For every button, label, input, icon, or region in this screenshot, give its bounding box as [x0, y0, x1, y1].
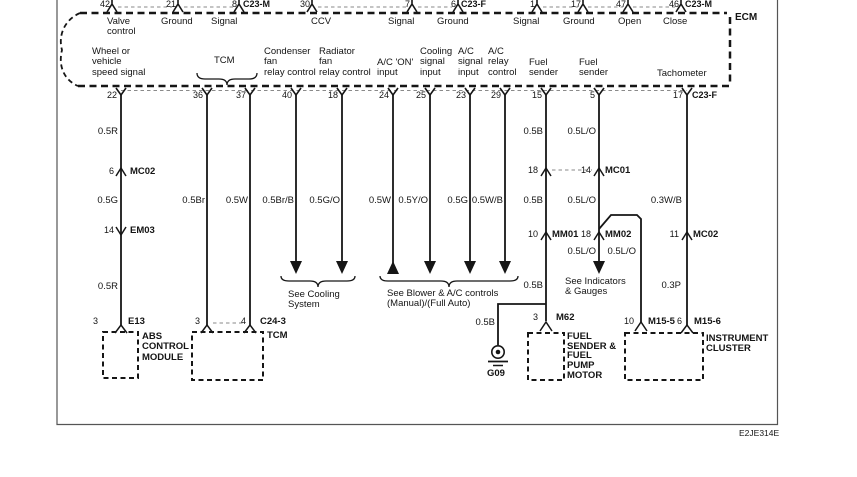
ecm-fn-cooling-signal: Cooling signal input: [420, 47, 456, 78]
connector-label-c23m-1: C23-M: [243, 0, 270, 10]
ecm-top-pin-6: 6: [441, 0, 456, 10]
ecm-top-pin-7: 7: [395, 0, 410, 10]
ecm-bottom-pin-18: 18: [322, 91, 338, 101]
ecm-fn-valve-control: Valve control: [107, 17, 143, 38]
tcm-connector: C24-3: [260, 317, 286, 327]
ecm-bottom-pin-25: 25: [410, 91, 426, 101]
ecm-fn-tcm: TCM: [214, 56, 235, 66]
ecm-fn-fuel-sender-2: Fuel sender: [579, 58, 613, 79]
wire-22-color-1: 0.5R: [85, 127, 118, 137]
ecm-top-pin-47: 47: [611, 0, 626, 10]
diagram-code: E2JE314E: [739, 429, 779, 438]
em03-pin: 14: [98, 226, 114, 236]
wire-25-color: 0.5Y/O: [392, 196, 428, 206]
ecm-bottom-pin-36: 36: [187, 91, 203, 101]
ecm-fn-condenser-fan: Condenser fan relay control: [264, 47, 318, 78]
see-indicators-gauges-note: See Indicators & Gauges: [565, 277, 626, 298]
m62-fork: [540, 322, 552, 331]
ecm-fn-ac-signal: A/C signal input: [458, 47, 488, 78]
wire-5-color-3: 0.5L/O: [560, 247, 596, 257]
wire-40-color: 0.5Br/B: [258, 196, 294, 206]
arrow-25: [424, 261, 436, 274]
mc02a-name: MC02: [130, 167, 155, 177]
wire-17-color-1: 0.3W/B: [646, 196, 682, 206]
fuel-pin: 3: [528, 313, 538, 323]
ecm-bottom-pin-24: 24: [373, 91, 389, 101]
tcm-pin-3: 3: [190, 317, 200, 327]
mc02b-pin: 11: [663, 230, 679, 240]
mc02a-pin: 6: [98, 167, 114, 177]
ecm-fn-close: Close: [663, 17, 687, 27]
wire-36-color: 0.5Br: [171, 196, 205, 206]
ecm-bottom-pin-15: 15: [526, 91, 542, 101]
ecm-fn-ground-2: Ground: [437, 17, 469, 27]
wire-15-color-2: 0.5B: [510, 196, 543, 206]
arrow-23: [464, 261, 476, 274]
wire-5-color-1: 0.5L/O: [560, 127, 596, 137]
connector-label-c23f-top: C23-F: [461, 0, 486, 10]
abs-connector: E13: [128, 317, 145, 327]
wire-5-branch-color: 0.5L/O: [602, 247, 636, 257]
em03-name: EM03: [130, 226, 155, 236]
ecm-top-pin-17: 17: [566, 0, 581, 10]
ecm-fn-open: Open: [618, 17, 641, 27]
ecm-fn-ground-1: Ground: [161, 17, 193, 27]
cluster-pin-10: 10: [620, 317, 634, 327]
see-blower-ac-note: See Blower & A/C controls (Manual)/(Full…: [387, 289, 498, 310]
ground-branch-color: 0.5B: [462, 318, 495, 328]
ecm-bottom-pin-17: 17: [667, 91, 683, 101]
abs-control-module-label: ABS CONTROL MODULE: [142, 332, 189, 363]
fuel-sender-pump-label: FUEL SENDER & FUEL PUMP MOTOR: [567, 332, 616, 380]
wire-17-color-2: 0.3P: [648, 281, 681, 291]
ground-symbol: [488, 346, 508, 366]
wire-22-color-2: 0.5G: [85, 196, 118, 206]
tcm-label: TCM: [267, 331, 288, 341]
fuel-connector: M62: [556, 313, 574, 323]
ecm-fn-signal-2: Signal: [388, 17, 414, 27]
ground-g09-label: G09: [487, 369, 505, 379]
wire-18-color: 0.5G/O: [304, 196, 340, 206]
m155-fork: [635, 322, 647, 331]
ecm-top-pin-8: 8: [222, 0, 237, 10]
wire-37-color: 0.5W: [214, 196, 248, 206]
arrow-40: [290, 261, 302, 274]
tcm-pin-4: 4: [236, 317, 246, 327]
ecm-top-pin-46: 46: [664, 0, 679, 10]
m156-fork: [681, 325, 693, 333]
ecm-bottom-pin-23: 23: [450, 91, 466, 101]
mc01-name: MC01: [605, 166, 630, 176]
ecm-fn-ground-3: Ground: [563, 17, 595, 27]
ecm-fn-ccv: CCV: [311, 17, 331, 27]
connector-label-c23f-bottom: C23-F: [692, 91, 717, 101]
abs-pin: 3: [88, 317, 98, 327]
see-cooling-system-note: See Cooling System: [288, 290, 340, 311]
arrow-5: [593, 261, 605, 274]
cluster-box: [625, 333, 703, 380]
wire-24-color: 0.5W: [357, 196, 391, 206]
wire-23-color: 0.5G: [434, 196, 468, 206]
mm02-pin: 18: [575, 230, 591, 240]
wire-15-color-3: 0.5B: [510, 281, 543, 291]
ecm-label: ECM: [735, 12, 757, 23]
ecm-fn-radiator-fan: Radiator fan relay control: [319, 47, 373, 78]
wire-5-color-2: 0.5L/O: [560, 196, 596, 206]
wiring-diagram-page: 42 21 8 30 7 6 1 17 47 46 C23-M C23-F C2…: [0, 0, 857, 477]
mm02-name: MM02: [605, 230, 631, 240]
instrument-cluster-label: INSTRUMENT CLUSTER: [706, 334, 768, 355]
wire-22-color-3: 0.5R: [85, 282, 118, 292]
ecm-fn-ac-on-input: A/C 'ON' input: [377, 58, 419, 79]
ecm-top-pin-30: 30: [295, 0, 310, 10]
wire-29-color: 0.5W/B: [467, 196, 503, 206]
blower-brace: [380, 276, 518, 287]
ecm-top-pin-21: 21: [161, 0, 176, 10]
ecm-fn-fuel-sender-1: Fuel sender: [529, 58, 563, 79]
connector-label-c23m-2: C23-M: [685, 0, 712, 10]
ecm-bottom-pin-40: 40: [276, 91, 292, 101]
ecm-top-pin-42: 42: [95, 0, 110, 10]
ecm-bottom-pin-37: 37: [230, 91, 246, 101]
arrow-24-up: [387, 261, 399, 274]
mc02b-name: MC02: [693, 230, 718, 240]
fuel-box: [528, 333, 564, 380]
mc01-left-pin: 18: [522, 166, 538, 176]
cluster-pin-6: 6: [677, 317, 682, 327]
ecm-bottom-pin-29: 29: [485, 91, 501, 101]
arrow-18: [336, 261, 348, 274]
cluster-connector-m156: M15-6: [694, 317, 721, 327]
mc01-right-pin: 14: [575, 166, 591, 176]
wire-15-ground-branch: [498, 304, 546, 345]
ecm-fn-tachometer: Tachometer: [657, 69, 707, 79]
arrows: [290, 261, 605, 274]
ecm-bottom-pin-5: 5: [579, 91, 595, 101]
ecm-bottom-pin-22: 22: [101, 91, 117, 101]
ecm-top-pin-1: 1: [520, 0, 535, 10]
tcm-brace: [197, 73, 257, 85]
ecm-fn-ac-relay: A/C relay control: [488, 47, 522, 78]
abs-box: [103, 332, 138, 378]
wire-15-color-1: 0.5B: [510, 127, 543, 137]
arrow-29: [499, 261, 511, 274]
cooling-brace: [281, 276, 355, 287]
ecm-fn-wheel-speed: Wheel or vehicle speed signal: [92, 47, 152, 78]
tcm-box: [192, 332, 263, 380]
mm01-pin: 10: [522, 230, 538, 240]
cluster-connector-m155: M15-5: [648, 317, 675, 327]
ecm-fn-signal-3: Signal: [513, 17, 539, 27]
ecm-fn-signal-1: Signal: [211, 17, 237, 27]
